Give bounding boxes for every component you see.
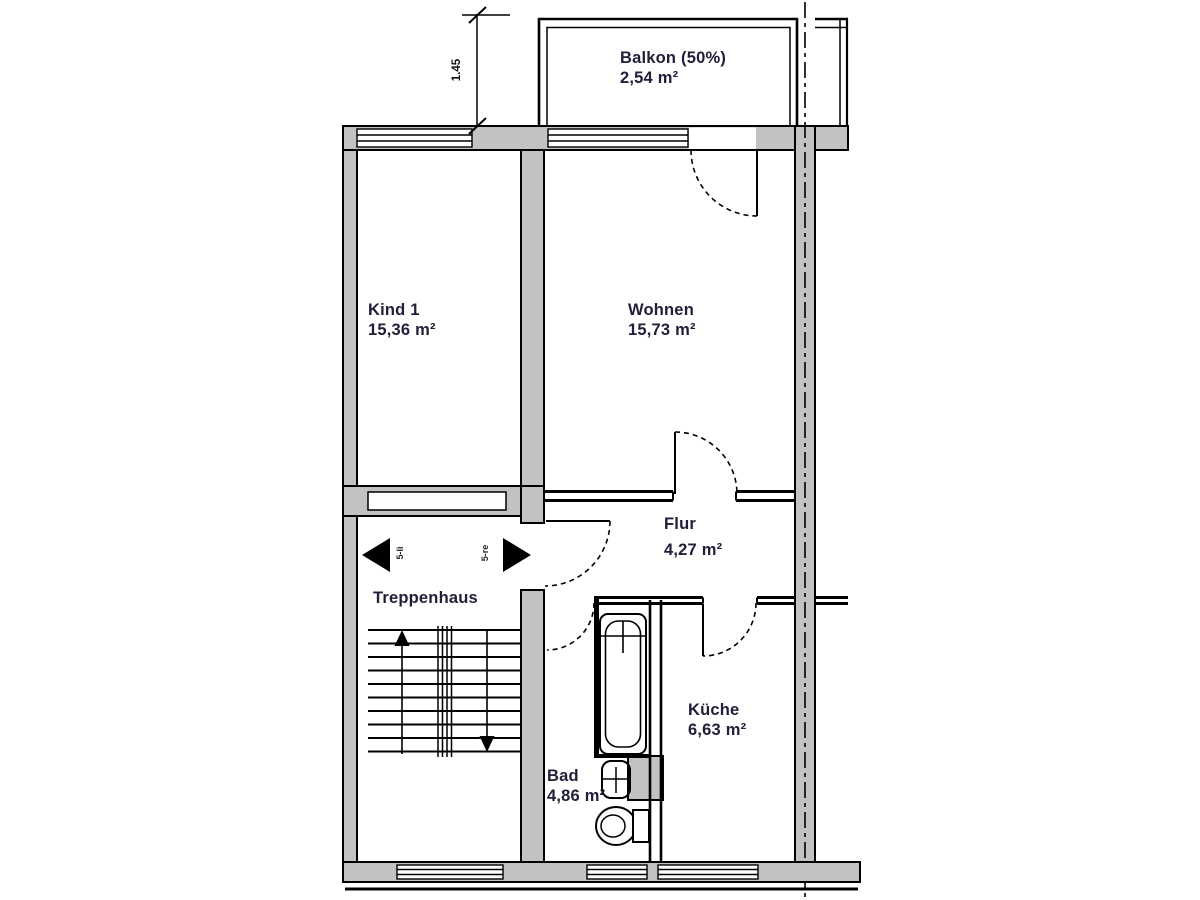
balcony-railing-neighbor [815,18,848,126]
room-label-kind1: Kind 1 15,36 m² [368,300,436,340]
window-bad [587,865,647,879]
room-label-balkon: Balkon (50%) 2,54 m² [620,48,726,88]
landing-arrows [362,538,531,572]
wall-flur-bad-kueche [594,598,795,604]
room-label-flur: Flur 4,27 m² [664,514,722,560]
wall-wohnen-flur [544,492,795,501]
window-kind1 [357,129,472,147]
toilet-icon [596,807,649,845]
door-label-right: 5-re [480,533,492,573]
washbasin-icon [602,761,630,798]
wall-neighbor-top [815,126,848,150]
room-name: Wohnen [628,301,694,319]
stair-arrow-down-icon [480,630,495,752]
window-kueche [658,865,758,879]
dimension-label: 1.45 [451,46,465,94]
wall-neighbor-mid [815,598,848,604]
building-section-line [795,2,815,898]
room-name: Balkon (50%) [620,49,726,67]
floor-plan-drawing [0,0,1200,900]
floor-plan-canvas: Balkon (50%) 2,54 m² Kind 1 15,36 m² Woh… [0,0,1200,900]
room-label-kueche: Küche 6,63 m² [688,700,746,740]
room-label-wohnen: Wohnen 15,73 m² [628,300,696,340]
room-area: 15,73 m² [628,320,696,340]
room-name: Bad [547,767,579,785]
room-label-bad: Bad 4,86 m² [547,766,605,806]
window-treppenhaus [397,865,503,879]
arrow-left-icon [362,538,390,572]
door-balcony [691,150,757,216]
door-wohnen-flur [675,432,737,494]
room-name: Flur [664,515,696,533]
opening-balcony-door [689,128,756,150]
bathroom-fixtures [596,614,649,845]
room-label-treppenhaus: Treppenhaus [373,588,478,608]
staircase [368,626,521,757]
door-bad [547,603,594,650]
door-label-left: 5-li [395,533,407,573]
bathtub-icon [600,614,646,754]
door-apartment-entrance [545,521,610,586]
stair-treads [368,630,521,752]
window-wohnen [548,129,688,147]
wall-entrance-column [521,486,544,523]
room-name: Treppenhaus [373,589,478,607]
door-kueche [703,603,756,656]
wall-landing-recess [368,492,506,510]
wall-treppenhaus-bad [521,590,544,865]
doors [545,150,757,656]
wall-bad-pillar [628,756,663,800]
wall-bad-kueche [650,600,661,862]
dimension-line [462,7,510,134]
arrow-right-icon [503,538,531,572]
room-area: 15,36 m² [368,320,436,340]
room-area: 2,54 m² [620,68,726,88]
room-name: Kind 1 [368,301,420,319]
wall-kind1-wohnen [521,150,544,490]
room-area: 6,63 m² [688,720,746,740]
room-name: Küche [688,701,739,719]
room-area: 4,27 m² [664,540,722,560]
stair-arrow-up-icon [395,630,410,754]
room-area: 4,86 m² [547,786,605,806]
